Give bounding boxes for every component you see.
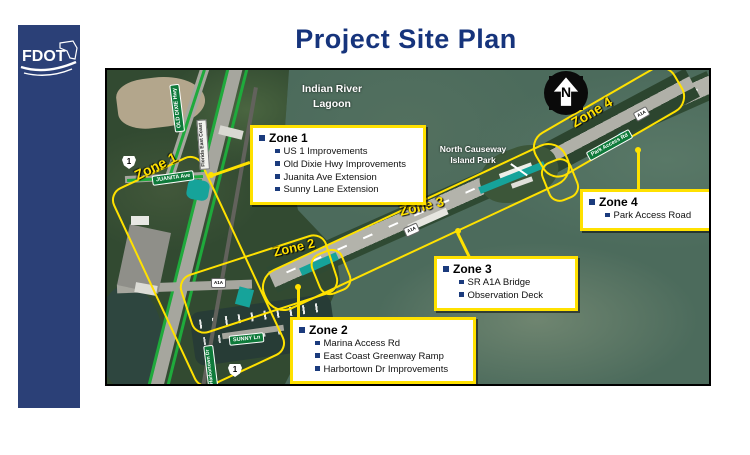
square-bullet-icon (299, 327, 305, 333)
zone1-callout: Zone 1 US 1 Improvements Old Dixie Hwy I… (250, 125, 426, 205)
square-bullet-icon (315, 366, 320, 371)
zone4-callout-title: Zone 4 (599, 195, 638, 209)
list-item: East Coast Greenway Ramp (315, 351, 467, 364)
list-item: Park Access Road (605, 210, 705, 223)
list-item: Harbortown Dr Improvements (315, 364, 467, 377)
zone1-leader-dot (208, 172, 214, 178)
a1a-shield: A1A (211, 278, 226, 288)
list-item: Sunny Lane Extension (275, 184, 417, 197)
zone2-callout-title: Zone 2 (309, 323, 348, 337)
lagoon-label: Indian River Lagoon (287, 82, 377, 112)
list-item: Juanita Ave Extension (275, 172, 417, 185)
zone1-callout-title: Zone 1 (269, 131, 308, 145)
list-item: Observation Deck (459, 290, 569, 303)
square-bullet-icon (459, 292, 464, 297)
square-bullet-icon (459, 280, 464, 285)
sidebar-accent-bar: FDOT (18, 25, 80, 408)
fdot-logo-icon: FDOT (18, 37, 80, 89)
square-bullet-icon (315, 341, 320, 346)
square-bullet-icon (275, 149, 280, 154)
list-item: US 1 Improvements (275, 146, 417, 159)
north-arrow-icon: N (544, 71, 588, 115)
square-bullet-icon (315, 353, 320, 358)
square-bullet-icon (275, 174, 280, 179)
zone3-callout-title: Zone 3 (453, 262, 492, 276)
list-item: Marina Access Rd (315, 338, 467, 351)
zone2-leader-dot (295, 284, 301, 290)
island-park-label: North Causeway Island Park (429, 144, 517, 166)
fdot-logo-text: FDOT (22, 48, 66, 65)
square-bullet-icon (275, 161, 280, 166)
site-map: Zone 1 Zone 2 Zone 3 Zone 4 OLD DIXIE Hw… (105, 68, 711, 386)
page-title: Project Site Plan (105, 24, 707, 55)
square-bullet-icon (275, 187, 280, 192)
zone3-leader-dot (455, 228, 461, 234)
square-bullet-icon (605, 213, 610, 218)
list-item: Old Dixie Hwy Improvements (275, 159, 417, 172)
zone4-callout: Zone 4 Park Access Road (580, 189, 711, 231)
list-item: SR A1A Bridge (459, 277, 569, 290)
zone4-leader-dot (635, 147, 641, 153)
slide: FDOT Project Site Plan (0, 0, 750, 455)
zone4-leader-line (637, 152, 640, 189)
zone2-leader-line (297, 289, 300, 317)
zone2-callout: Zone 2 Marina Access Rd East Coast Green… (290, 317, 476, 384)
square-bullet-icon (443, 266, 449, 272)
square-bullet-icon (589, 199, 595, 205)
zone3-callout: Zone 3 SR A1A Bridge Observation Deck (434, 256, 578, 311)
square-bullet-icon (259, 135, 265, 141)
